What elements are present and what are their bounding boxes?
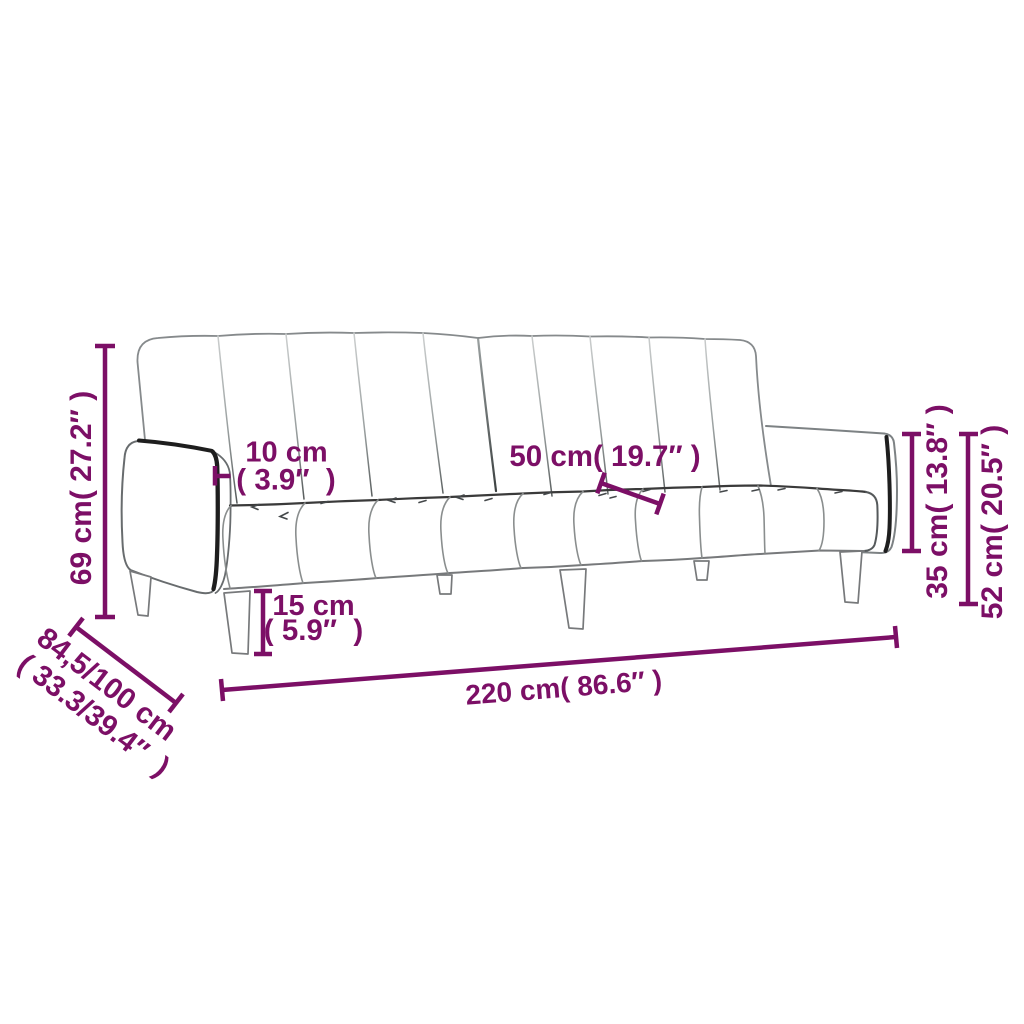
- svg-text:50 cm( 19.7″ ): 50 cm( 19.7″ ): [509, 440, 700, 473]
- svg-text:( 5.9″ ): ( 5.9″ ): [264, 614, 363, 647]
- svg-text:52 cm( 20.5″ ): 52 cm( 20.5″ ): [976, 425, 1009, 619]
- svg-text:69 cm( 27.2″ ): 69 cm( 27.2″ ): [65, 391, 98, 585]
- svg-text:( 3.9″ ): ( 3.9″ ): [236, 464, 335, 497]
- svg-text:35 cm( 13.8″ ): 35 cm( 13.8″ ): [921, 404, 954, 598]
